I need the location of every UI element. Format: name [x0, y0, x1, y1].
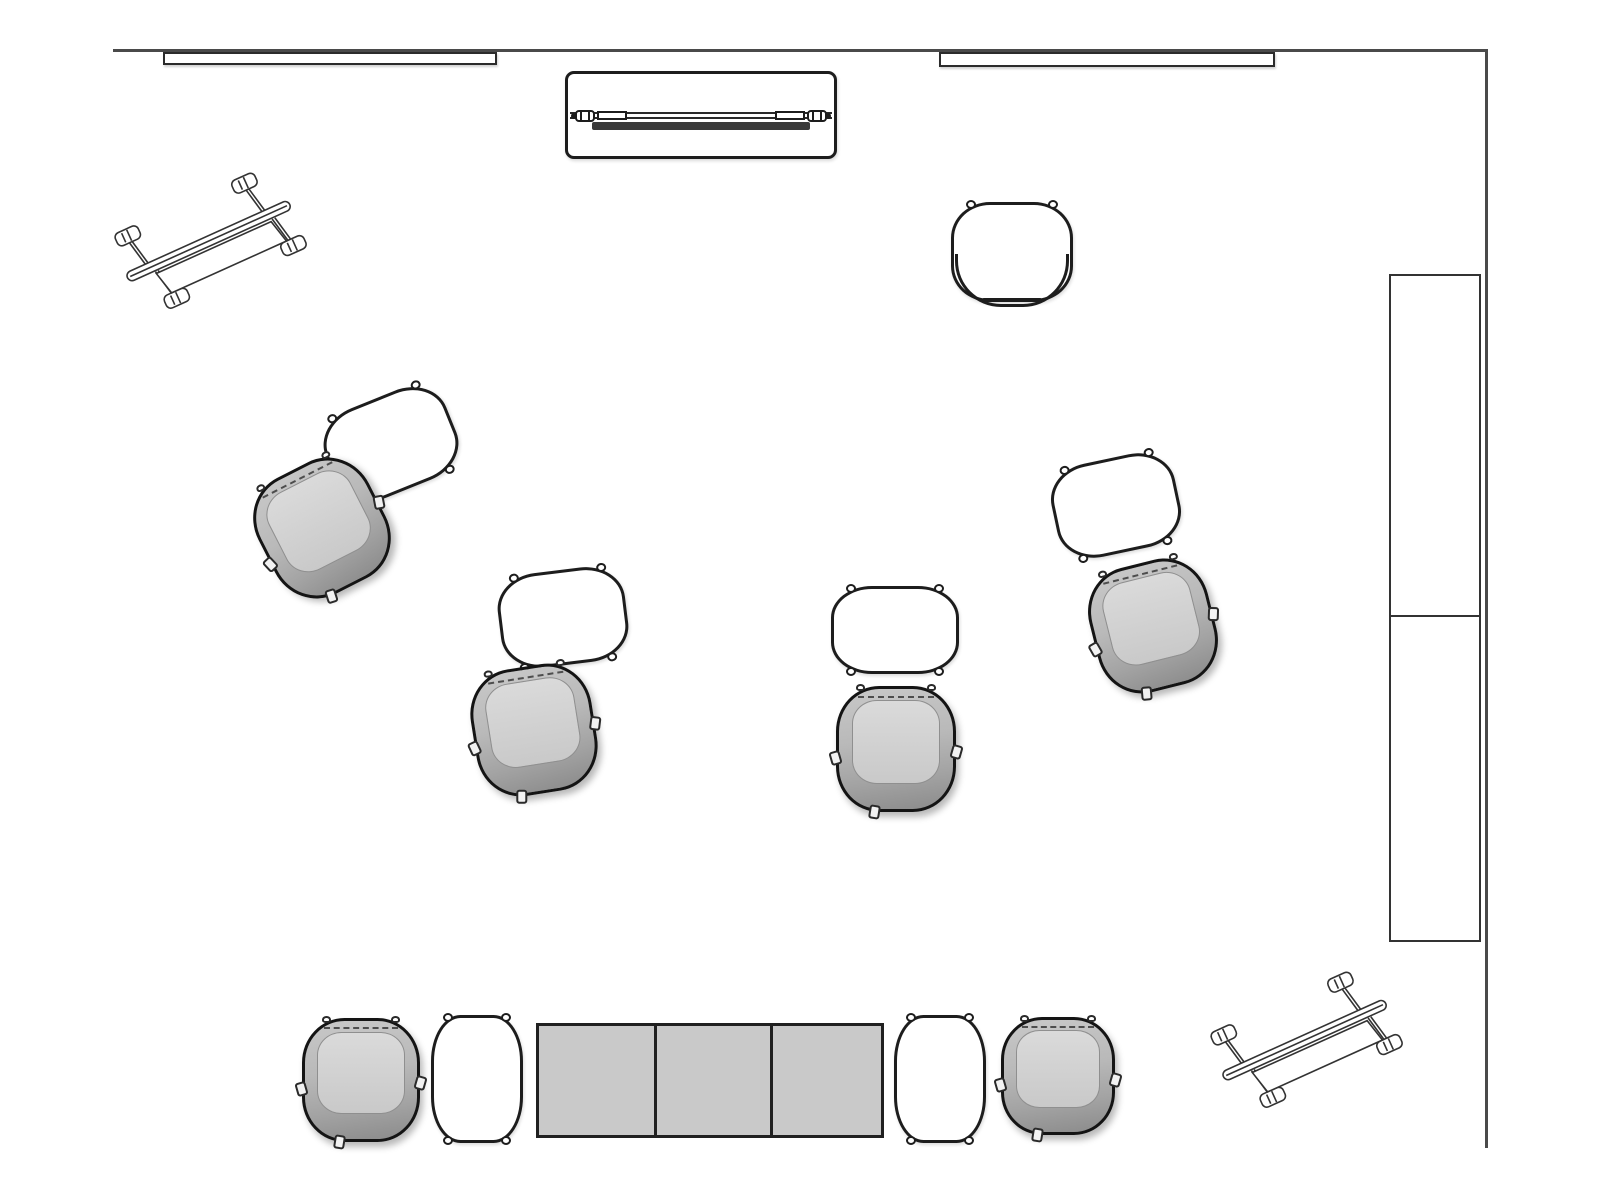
- table-glide-icon: [509, 573, 520, 583]
- caster-icon: [828, 750, 842, 766]
- chair-glide-icon: [1020, 1015, 1029, 1022]
- credenza-drawer-pull: [775, 111, 805, 120]
- square-table-group: [536, 1023, 884, 1138]
- chair-glide-icon: [484, 670, 494, 678]
- caster-icon: [1108, 1071, 1122, 1087]
- chair-glide-icon: [856, 684, 865, 691]
- table-rim-detail: [982, 298, 1042, 302]
- table-glide-icon: [501, 1013, 511, 1022]
- occasional-table-3: [831, 586, 959, 674]
- caster-icon: [333, 1134, 346, 1150]
- chair-seat: [1097, 567, 1205, 672]
- lounge-chair-5: [302, 1018, 420, 1142]
- caster-icon: [294, 1081, 308, 1097]
- table-glide-icon: [966, 200, 976, 209]
- table-glide-icon: [1162, 535, 1174, 546]
- chair-glide-icon: [1087, 1015, 1096, 1022]
- caster-icon: [1031, 1127, 1044, 1143]
- occasional-table-5: [431, 1015, 523, 1143]
- table-glide-icon: [501, 1136, 511, 1145]
- table-glide-icon: [1059, 464, 1071, 475]
- table-glide-icon: [1077, 553, 1089, 564]
- lounge-chair-4: [1078, 549, 1227, 703]
- credenza-drawer-pull: [597, 111, 627, 120]
- floor-plan-canvas: [0, 0, 1600, 1200]
- wall-board-right: [939, 52, 1275, 67]
- table-glide-icon: [964, 1136, 974, 1145]
- chair-seat: [852, 700, 941, 784]
- table-glide-icon: [326, 412, 339, 424]
- square-table-divider: [654, 1026, 657, 1135]
- table-glide-icon: [443, 463, 456, 475]
- caster-icon: [324, 588, 339, 605]
- caster-icon: [1087, 641, 1104, 659]
- table-glide-icon: [606, 651, 617, 661]
- table-glide-icon: [934, 667, 944, 676]
- chair-glide-icon: [927, 684, 936, 691]
- wall-right: [1485, 49, 1488, 1148]
- caster-icon: [1141, 686, 1153, 701]
- caster-icon: [589, 716, 602, 731]
- occasional-table-2: [494, 562, 633, 672]
- table-glide-icon: [906, 1136, 916, 1145]
- caster-icon: [516, 790, 527, 804]
- caster-icon: [467, 740, 483, 757]
- chair-glide-icon: [1098, 570, 1108, 579]
- table-glide-icon: [443, 1136, 453, 1145]
- chair-seam: [1022, 1026, 1093, 1028]
- chair-glide-icon: [322, 1016, 331, 1023]
- occasional-table-4: [1045, 445, 1188, 564]
- caster-icon: [262, 556, 280, 574]
- table-glide-icon: [934, 584, 944, 593]
- table-glide-icon: [964, 1013, 974, 1022]
- bench-bottom-right: [1200, 962, 1410, 1127]
- lounge-chair-6: [1001, 1017, 1115, 1135]
- chair-glide-icon: [391, 1016, 400, 1023]
- occasional-table-top-right: [951, 202, 1073, 302]
- caster-icon: [571, 113, 576, 119]
- bench-drawing: [104, 163, 314, 328]
- chair-seat: [317, 1032, 404, 1115]
- storage-divider: [1391, 615, 1479, 617]
- chair-glide-icon: [1168, 552, 1178, 561]
- media-credenza: [565, 71, 837, 159]
- chair-seat: [481, 674, 584, 773]
- chair-seat: [1016, 1030, 1100, 1108]
- chair-glide-icon: [555, 658, 565, 666]
- table-glide-icon: [1048, 200, 1058, 209]
- lounge-chair-3: [836, 686, 956, 812]
- chair-glide-icon: [255, 483, 266, 493]
- table-glide-icon: [846, 584, 856, 593]
- table-glide-icon: [595, 562, 606, 572]
- table-glide-icon: [846, 667, 856, 676]
- bench-drawing: [1200, 962, 1410, 1127]
- caster-icon: [949, 744, 963, 760]
- wall-board-left: [163, 52, 497, 65]
- bench-top-left: [104, 163, 314, 328]
- lounge-chair-2: [464, 657, 605, 803]
- occasional-table-6: [894, 1015, 986, 1143]
- chair-seam: [858, 696, 933, 698]
- storage-wall-unit: [1389, 274, 1481, 942]
- caster-icon: [1208, 607, 1219, 621]
- table-glide-icon: [409, 379, 422, 391]
- table-glide-icon: [906, 1013, 916, 1022]
- caster-icon: [413, 1075, 427, 1091]
- table-glide-icon: [1143, 447, 1155, 458]
- caster-icon: [575, 110, 595, 122]
- caster-icon: [868, 804, 881, 820]
- chair-seam: [324, 1027, 398, 1029]
- table-glide-icon: [443, 1013, 453, 1022]
- square-table-divider: [770, 1026, 773, 1135]
- caster-icon: [993, 1077, 1007, 1093]
- display-screen-bar: [592, 122, 810, 130]
- caster-icon: [807, 110, 827, 122]
